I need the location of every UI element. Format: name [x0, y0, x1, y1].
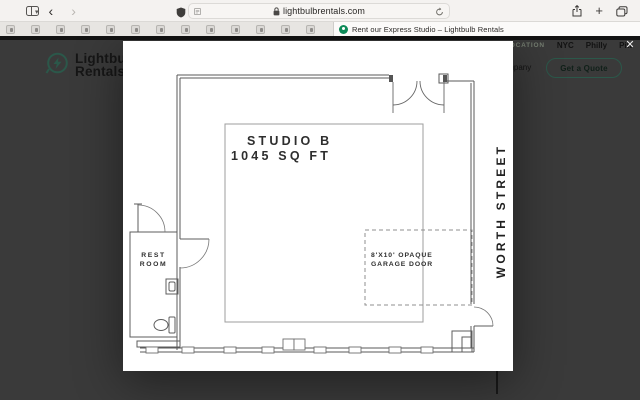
garage-label-line2: GARAGE DOOR — [371, 261, 433, 268]
pinned-tab[interactable] — [306, 25, 315, 34]
pinned-tab[interactable] — [156, 25, 165, 34]
pinned-tab[interactable] — [81, 25, 90, 34]
nav-city-philly[interactable]: Philly — [586, 41, 607, 50]
pinned-tab[interactable] — [6, 25, 15, 34]
get-a-quote-button[interactable]: Get a Quote — [546, 58, 622, 78]
pinned-tab[interactable] — [181, 25, 190, 34]
browser-toolbar: ▾ ‹ › lightbulbrentals.com — [0, 0, 640, 22]
plan-walls — [140, 74, 474, 352]
lightbulb-logo-icon — [45, 52, 70, 79]
pinned-tab[interactable] — [281, 25, 290, 34]
sidebar-toggle-button[interactable]: ▾ — [26, 6, 39, 16]
garage-label-line1: 8'X10' OPAQUE — [371, 252, 433, 259]
pinned-tab[interactable] — [131, 25, 140, 34]
address-bar[interactable]: lightbulbrentals.com — [188, 3, 450, 19]
plan-restroom — [130, 204, 209, 347]
page-top-border — [0, 36, 640, 40]
active-tab[interactable]: Rent our Express Studio – Lightbulb Rent… — [335, 22, 640, 36]
utility-nav: LOCATION NYC Philly Pitt — [505, 41, 632, 50]
tab-strip: Rent our Express Studio – Lightbulb Rent… — [0, 22, 640, 36]
chevron-down-icon: ▾ — [35, 8, 39, 16]
pinned-tab[interactable] — [206, 25, 215, 34]
plan-double-door — [389, 75, 447, 113]
forward-button[interactable]: › — [71, 6, 76, 16]
restroom-label-line1: REST — [141, 252, 166, 259]
reader-view-icon — [194, 8, 201, 15]
restroom-label-line2: ROOM — [140, 261, 168, 268]
tab-title: Rent our Express Studio – Lightbulb Rent… — [352, 25, 504, 34]
pinned-tab[interactable] — [31, 25, 40, 34]
page-divider-line — [496, 371, 498, 394]
lock-icon — [273, 7, 280, 16]
pinned-tab[interactable] — [56, 25, 65, 34]
site-favicon-icon — [339, 25, 348, 34]
floor-plan-modal: STUDIO B 1045 SQ FT REST ROOM 8'X10' OPA… — [123, 41, 513, 371]
close-icon: ✕ — [625, 39, 634, 51]
plan-side-door — [452, 307, 493, 352]
url-text: lightbulbrentals.com — [283, 6, 365, 16]
pinned-tab[interactable] — [106, 25, 115, 34]
reload-icon[interactable] — [435, 7, 444, 17]
tab-overview-button[interactable] — [616, 6, 628, 17]
pinned-tab[interactable] — [231, 25, 240, 34]
modal-close-button[interactable]: ✕ — [623, 38, 637, 52]
plan-labels: STUDIO B 1045 SQ FT REST ROOM 8'X10' OPA… — [140, 134, 508, 278]
shield-icon — [176, 7, 186, 18]
privacy-shield-button[interactable] — [176, 5, 186, 23]
floor-plan-drawing: STUDIO B 1045 SQ FT REST ROOM 8'X10' OPA… — [123, 41, 513, 371]
pinned-tab[interactable] — [256, 25, 265, 34]
nav-city-nyc[interactable]: NYC — [557, 41, 574, 50]
studio-area: 1045 SQ FT — [231, 149, 331, 163]
back-button[interactable]: ‹ — [49, 6, 54, 16]
share-button[interactable] — [572, 5, 582, 17]
studio-title: STUDIO B — [247, 134, 332, 148]
plan-mullions — [146, 339, 433, 353]
page-content: Lightbulb Rentals LOCATION NYC Philly Pi… — [0, 36, 640, 400]
new-tab-button[interactable]: + — [595, 6, 603, 16]
browser-window: ▾ ‹ › lightbulbrentals.com — [0, 0, 640, 400]
pinned-tabs — [0, 22, 334, 36]
street-label: WORTH STREET — [494, 144, 508, 278]
